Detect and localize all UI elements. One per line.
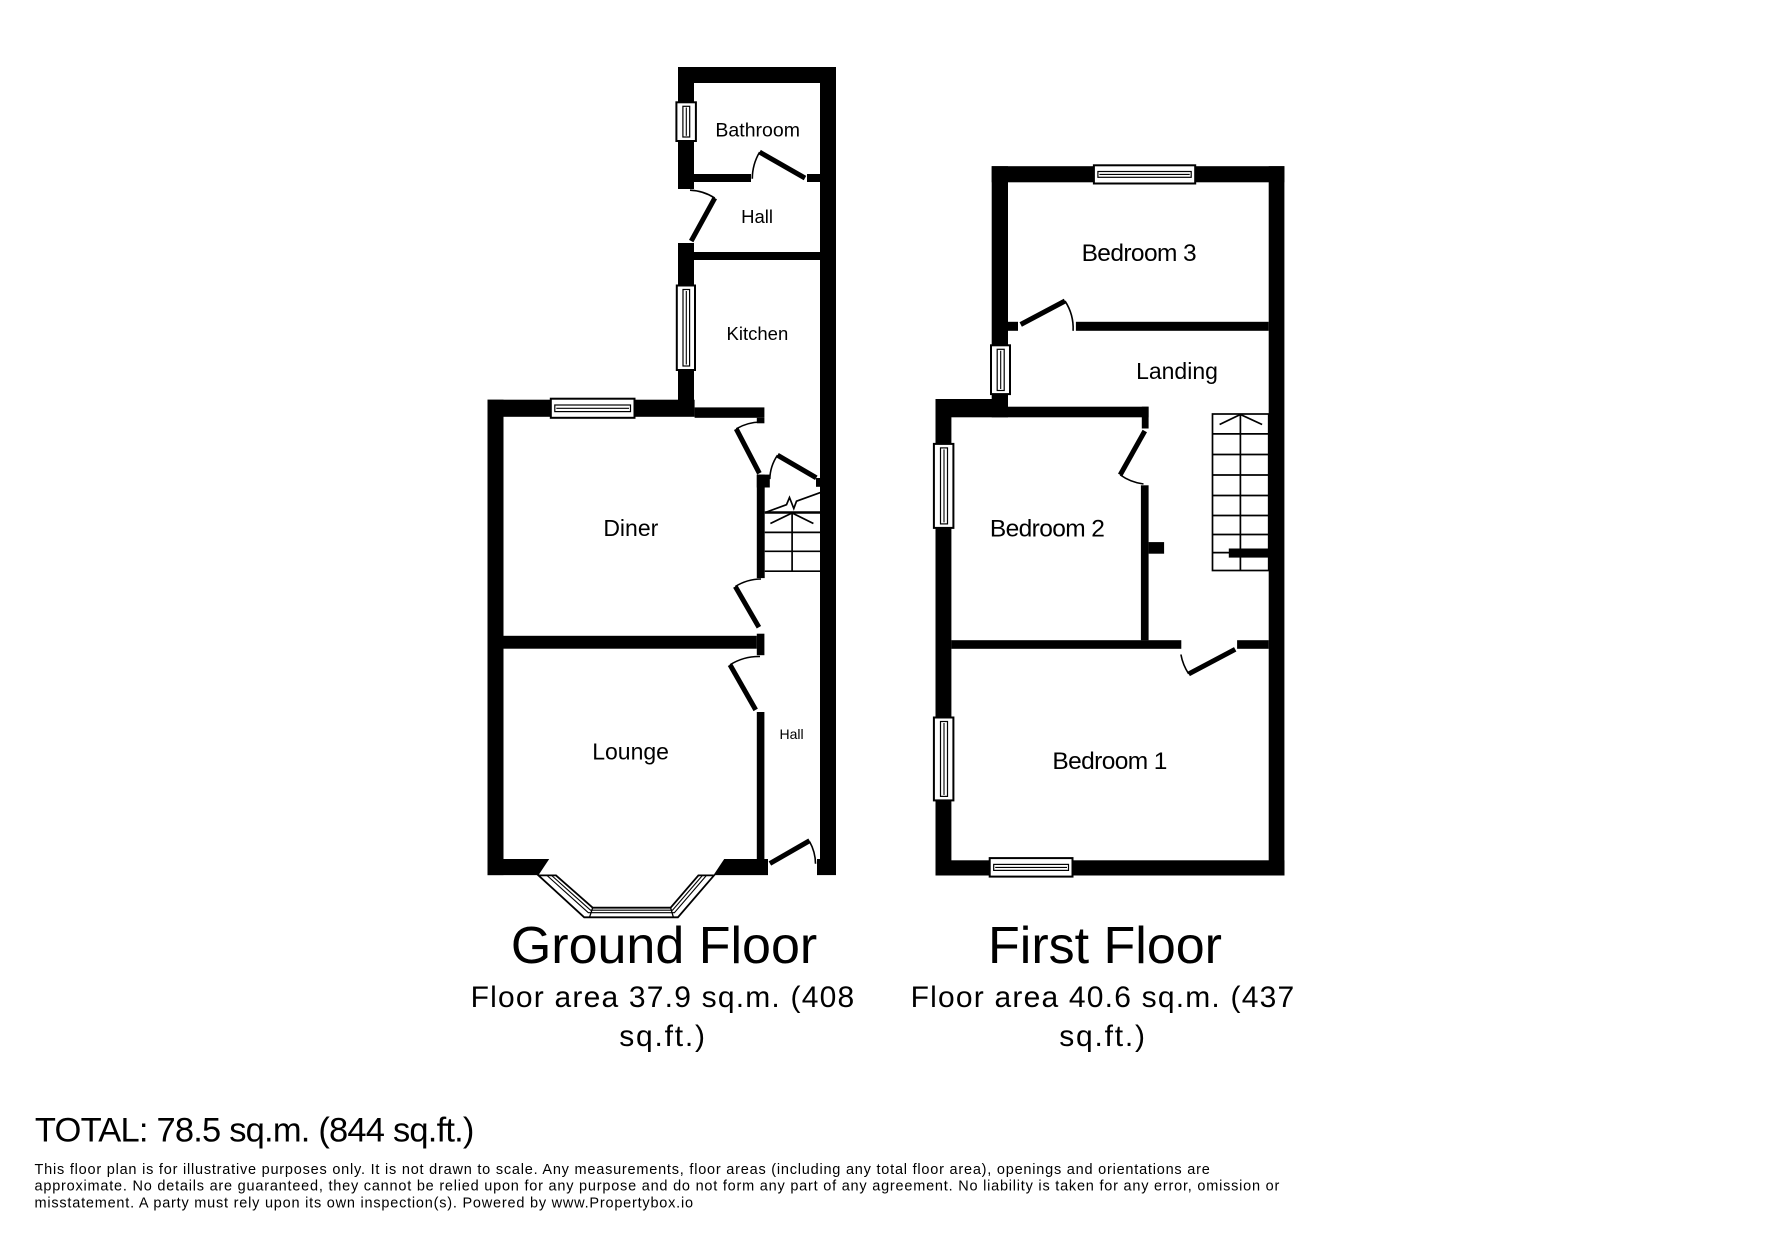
svg-text:Floor area 40.6 sq.m. (437: Floor area 40.6 sq.m. (437 — [911, 981, 1296, 1014]
svg-text:Bedroom 3: Bedroom 3 — [1082, 240, 1196, 267]
svg-text:Floor area 37.9 sq.m. (408: Floor area 37.9 sq.m. (408 — [471, 981, 856, 1014]
svg-text:Lounge: Lounge — [592, 739, 669, 765]
svg-text:Ground Floor: Ground Floor — [511, 917, 817, 975]
svg-text:Diner: Diner — [603, 515, 658, 541]
svg-text:Hall: Hall — [780, 726, 804, 742]
svg-text:Bedroom 2: Bedroom 2 — [990, 516, 1104, 543]
svg-text:Bedroom 1: Bedroom 1 — [1052, 748, 1166, 775]
svg-text:Bathroom: Bathroom — [715, 119, 800, 141]
svg-text:Hall: Hall — [741, 206, 773, 227]
svg-text:This floor plan is for illustr: This floor plan is for illustrative purp… — [35, 1162, 1211, 1178]
svg-text:Kitchen: Kitchen — [727, 323, 789, 344]
svg-text:misstatement. A party must rel: misstatement. A party must rely upon its… — [35, 1195, 694, 1211]
svg-text:Landing: Landing — [1136, 358, 1218, 384]
svg-text:sq.ft.): sq.ft.) — [1059, 1020, 1147, 1053]
svg-text:sq.ft.): sq.ft.) — [619, 1020, 707, 1053]
svg-text:First Floor: First Floor — [988, 917, 1222, 975]
svg-text:approximate. No details are gu: approximate. No details are guaranteed, … — [35, 1179, 1281, 1195]
svg-text:TOTAL: 78.5 sq.m. (844 sq.ft.): TOTAL: 78.5 sq.m. (844 sq.ft.) — [35, 1111, 474, 1149]
